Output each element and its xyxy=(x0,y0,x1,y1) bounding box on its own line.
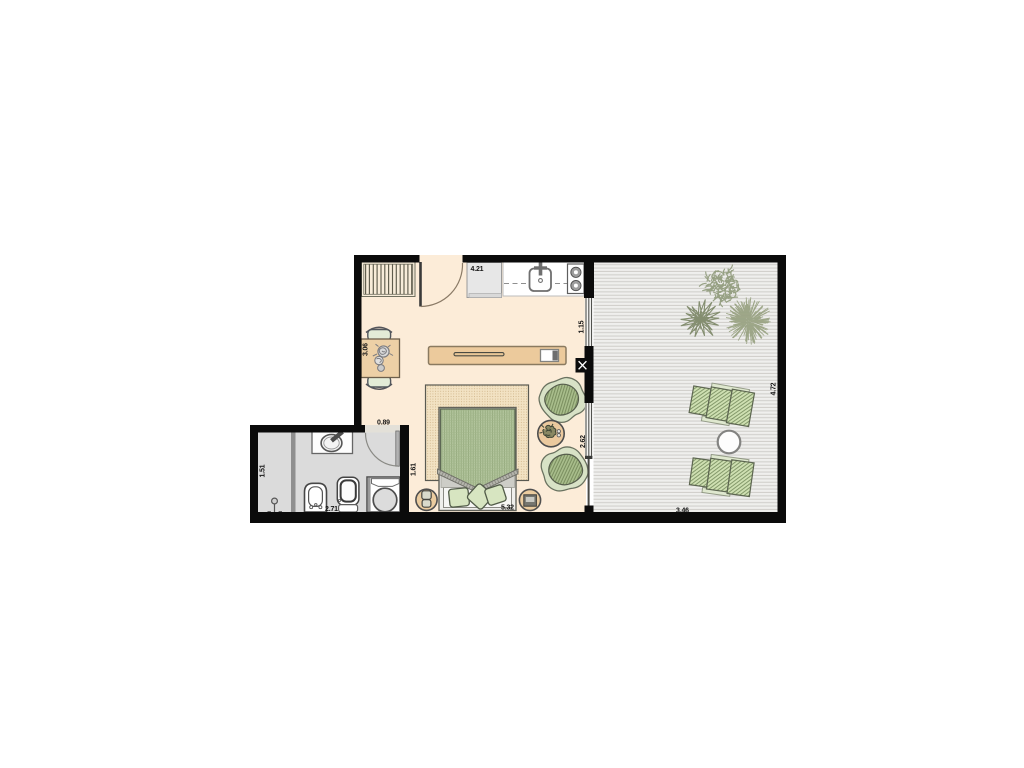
svg-text:2.62: 2.62 xyxy=(580,435,587,448)
svg-text:0.89: 0.89 xyxy=(377,420,390,427)
svg-text:1.61: 1.61 xyxy=(411,463,418,476)
svg-text:3.46: 3.46 xyxy=(676,507,689,514)
svg-text:5.32: 5.32 xyxy=(501,505,514,512)
svg-text:1.51: 1.51 xyxy=(260,464,267,477)
svg-text:4.21: 4.21 xyxy=(471,266,484,273)
svg-text:4.72: 4.72 xyxy=(771,382,778,395)
svg-text:2.71: 2.71 xyxy=(325,506,338,513)
svg-text:1.15: 1.15 xyxy=(579,320,586,333)
svg-text:3.06: 3.06 xyxy=(363,343,370,356)
